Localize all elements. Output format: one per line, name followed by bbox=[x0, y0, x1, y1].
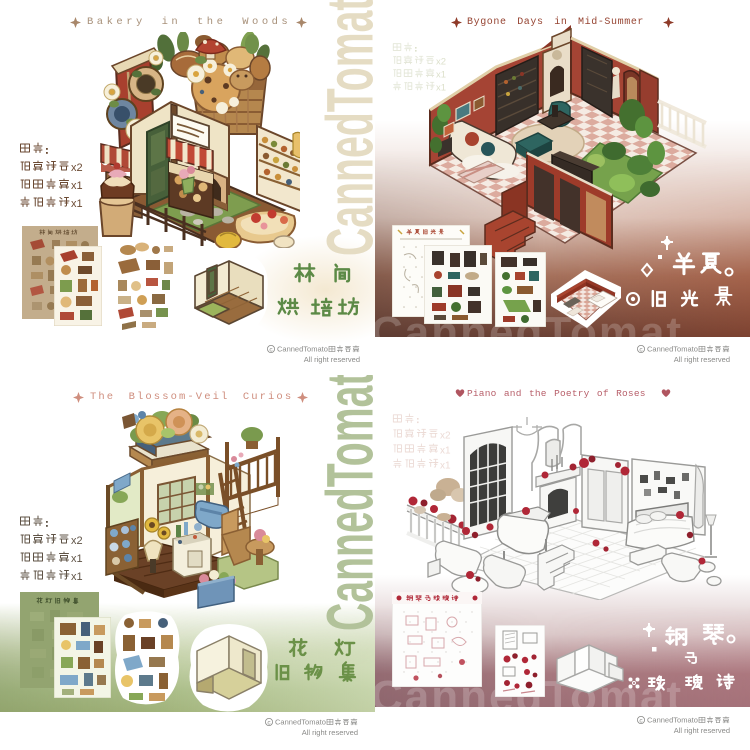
svg-text:CannedTomato: CannedTomato bbox=[647, 716, 698, 725]
svg-text:CannedTomato: CannedTomato bbox=[277, 345, 328, 354]
svg-text:x1: x1 bbox=[71, 553, 83, 565]
svg-text:x1: x1 bbox=[71, 198, 83, 210]
svg-text:x1: x1 bbox=[71, 180, 83, 192]
svg-text:x1: x1 bbox=[71, 571, 83, 583]
svg-text:CannedTomato: CannedTomato bbox=[647, 345, 698, 354]
svg-text:CannedTomato: CannedTomato bbox=[275, 718, 326, 727]
svg-text:x2: x2 bbox=[71, 162, 83, 174]
svg-text:x2: x2 bbox=[71, 535, 83, 547]
